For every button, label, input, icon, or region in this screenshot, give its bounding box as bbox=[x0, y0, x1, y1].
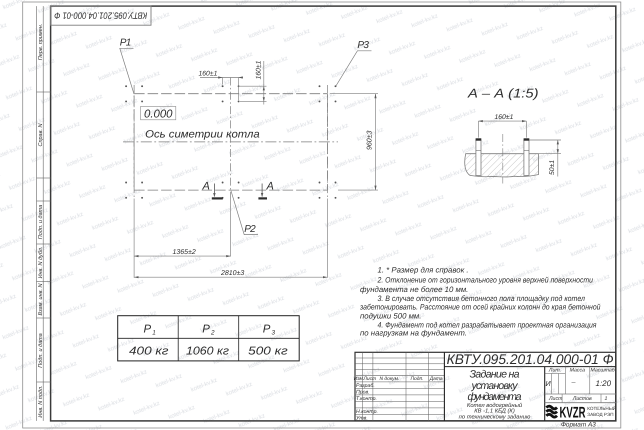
svg-text:Задание на: Задание на bbox=[470, 369, 520, 381]
svg-text:КВТУ.095.201.04.000-01 Ф: КВТУ.095.201.04.000-01 Ф bbox=[54, 11, 147, 21]
svg-text:2810±3: 2810±3 bbox=[220, 270, 244, 277]
svg-text:50±1: 50±1 bbox=[549, 160, 556, 175]
svg-text:Дата: Дата bbox=[429, 376, 443, 382]
svg-text:Утв.: Утв. bbox=[356, 415, 368, 421]
svg-text:1. * Размер для справок .: 1. * Размер для справок . bbox=[378, 265, 469, 274]
svg-text:КВТУ.095.201.04.000-01 Ф: КВТУ.095.201.04.000-01 Ф bbox=[447, 351, 614, 367]
svg-text:по техническому заданию: по техническому заданию bbox=[459, 414, 531, 421]
svg-text:Т.контр.: Т.контр. bbox=[356, 396, 377, 402]
svg-text:2. Отклонение от горизонтально: 2. Отклонение от горизонтального уровня … bbox=[377, 275, 594, 284]
svg-text:1060 кг: 1060 кг bbox=[186, 346, 229, 358]
svg-text:Масса: Масса bbox=[570, 368, 585, 374]
svg-text:Справ. N: Справ. N bbox=[38, 123, 44, 146]
svg-text:КОТЕЛЬНЫЙ: КОТЕЛЬНЫЙ bbox=[587, 405, 616, 411]
svg-text:160±1: 160±1 bbox=[199, 70, 218, 77]
svg-text:Масштаб: Масштаб bbox=[590, 368, 615, 374]
svg-text:P: P bbox=[202, 323, 210, 335]
svg-text:Инв. N подл.: Инв. N подл. bbox=[38, 385, 44, 417]
svg-text:160±1: 160±1 bbox=[495, 114, 514, 121]
svg-text:N докум.: N докум. bbox=[380, 376, 400, 382]
svg-text:3: 3 bbox=[272, 329, 276, 336]
svg-text:подушки 500 мм.: подушки 500 мм. bbox=[360, 312, 421, 321]
svg-text:А – А (1:5): А – А (1:5) bbox=[467, 86, 539, 101]
svg-text:Инв. N дубл.: Инв. N дубл. bbox=[37, 247, 44, 279]
svg-text:Разраб.: Разраб. bbox=[356, 383, 375, 389]
svg-text:ЗАВОД РЭП: ЗАВОД РЭП bbox=[587, 412, 613, 417]
svg-text:960±3: 960±3 bbox=[366, 130, 373, 150]
svg-text:Лист: Лист bbox=[363, 376, 377, 382]
svg-text:Формат А3: Формат А3 bbox=[561, 422, 596, 429]
svg-text:фундамента: фундамента bbox=[468, 391, 522, 403]
svg-text:500 кг: 500 кг bbox=[248, 346, 288, 358]
svg-text:0.000: 0.000 bbox=[144, 108, 173, 120]
svg-text:забетонировать. Расстояние от: забетонировать. Расстояние от осей крайн… bbox=[359, 303, 601, 312]
svg-text:по нагрузкам на фундамент.: по нагрузкам на фундамент. bbox=[360, 329, 467, 338]
svg-text:Лист: Лист bbox=[548, 396, 563, 402]
svg-text:P: P bbox=[263, 323, 271, 335]
svg-text:1:20: 1:20 bbox=[596, 379, 612, 388]
svg-text:1: 1 bbox=[605, 396, 608, 402]
svg-text:КВ -1,1 КБД (К): КВ -1,1 КБД (К) bbox=[474, 408, 515, 415]
svg-text:P: P bbox=[144, 323, 152, 335]
svg-text:Подп.: Подп. bbox=[410, 376, 423, 382]
svg-text:1365±2: 1365±2 bbox=[173, 249, 196, 256]
svg-text:Подп. и дата: Подп. и дата bbox=[38, 333, 44, 367]
svg-text:Подп. и дата: Подп. и дата bbox=[38, 205, 44, 239]
svg-text:Лит.: Лит. bbox=[548, 368, 561, 374]
svg-text:А: А bbox=[202, 180, 210, 192]
svg-text:Перв. примен.: Перв. примен. bbox=[38, 24, 44, 61]
svg-text:Взам. инв. N: Взам. инв. N bbox=[38, 283, 44, 315]
svg-text:фундамента не более 10 мм.: фундамента не более 10 мм. bbox=[360, 285, 468, 294]
svg-text:KVZR: KVZR bbox=[560, 404, 586, 421]
svg-text:Пров.: Пров. bbox=[356, 389, 370, 395]
svg-text:P2: P2 bbox=[244, 224, 256, 235]
svg-text:P3: P3 bbox=[357, 40, 369, 51]
svg-text:160±1: 160±1 bbox=[255, 60, 262, 79]
svg-text:1: 1 bbox=[152, 329, 156, 336]
svg-text:2: 2 bbox=[210, 329, 215, 336]
svg-text:И: И bbox=[546, 379, 552, 388]
svg-text:А: А bbox=[266, 180, 274, 192]
svg-text:Ось симетрии котла: Ось симетрии котла bbox=[145, 129, 260, 141]
svg-text:P1: P1 bbox=[120, 38, 132, 49]
svg-text:Н.контр.: Н.контр. bbox=[356, 409, 378, 415]
svg-text:Листов: Листов bbox=[572, 396, 592, 402]
svg-text:400 кг: 400 кг bbox=[129, 346, 169, 358]
